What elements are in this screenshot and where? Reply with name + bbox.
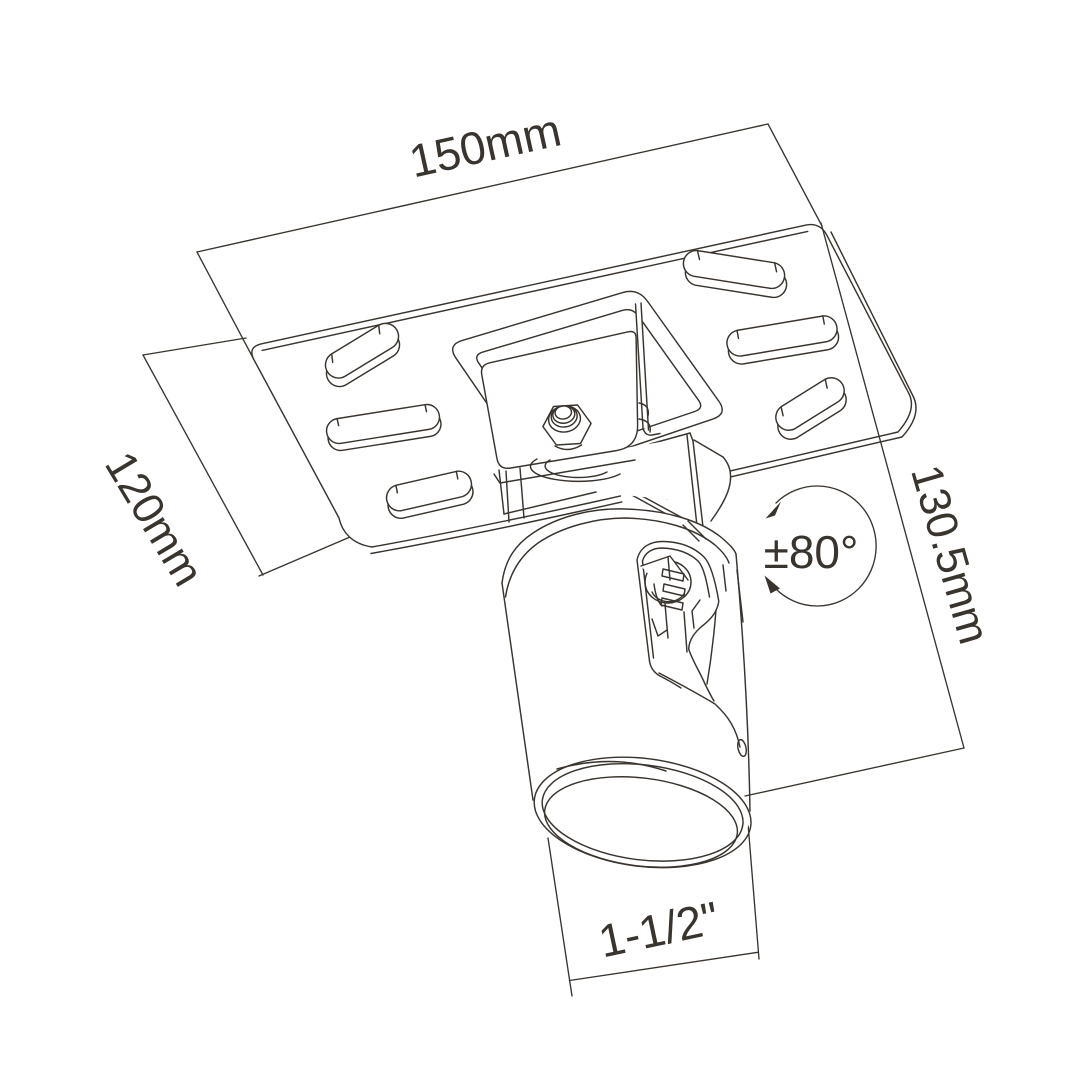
svg-text:1-1/2": 1-1/2" (594, 891, 723, 967)
svg-text:120mm: 120mm (95, 444, 213, 595)
svg-text:±80°: ±80° (764, 526, 859, 578)
svg-text:130.5mm: 130.5mm (901, 460, 999, 650)
